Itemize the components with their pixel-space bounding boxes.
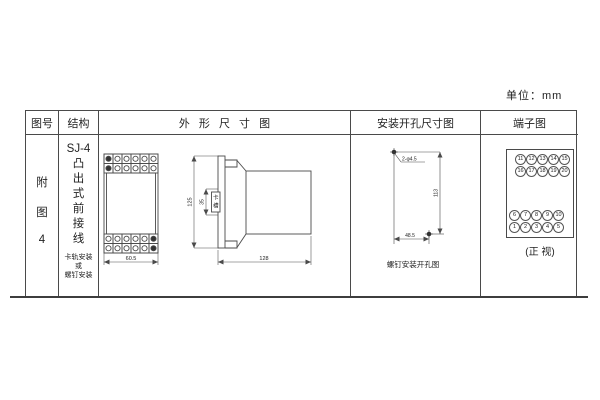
mount-note-line: 螺钉安装 bbox=[65, 271, 93, 280]
structure-char: 凸 bbox=[73, 157, 85, 172]
header-outline: 外 形 尺 寸 图 bbox=[99, 111, 351, 135]
mounting-hole-bottom bbox=[427, 232, 432, 237]
dimension-lines bbox=[104, 156, 311, 265]
relay-front-view bbox=[104, 154, 158, 253]
terminal-18: 18 bbox=[537, 166, 548, 177]
terminal-row: 1617181920 bbox=[515, 166, 570, 177]
terminal-19: 19 bbox=[548, 166, 559, 177]
terminal-13: 13 bbox=[537, 154, 548, 165]
terminal-16: 16 bbox=[515, 166, 526, 177]
terminal-8: 8 bbox=[531, 210, 542, 221]
terminal-1: 1 bbox=[509, 222, 520, 233]
terminal-row: 678910 bbox=[509, 210, 564, 221]
fig-no-char: 图 bbox=[36, 204, 48, 220]
terminal-7: 7 bbox=[520, 210, 531, 221]
horizontal-dim-label: 48.5 bbox=[405, 233, 415, 239]
mounting-hole-drawing: 2-φ4.5 113 48.5 螺钉安装开孔图 bbox=[351, 135, 481, 298]
terminal-4: 4 bbox=[542, 222, 553, 233]
outline-drawing-cell: 60.5 125 35 128 卡槽 bbox=[99, 135, 351, 298]
model-label: SJ-4 bbox=[67, 143, 91, 155]
relay-side-view bbox=[212, 156, 312, 248]
terminal-screw-grid bbox=[104, 154, 158, 253]
terminal-14: 14 bbox=[548, 154, 559, 165]
spec-table: 图号 结构 外 形 尺 寸 图 安装开孔尺寸图 端子图 附 图 4 SJ-4 凸… bbox=[25, 110, 577, 297]
fig-no-char: 附 bbox=[36, 174, 48, 190]
terminal-20: 20 bbox=[559, 166, 570, 177]
terminal-row: 12345 bbox=[509, 222, 564, 233]
side-depth-dim-label: 128 bbox=[259, 256, 268, 262]
slot-label-char: 槽 bbox=[213, 202, 219, 210]
terminal-11: 11 bbox=[515, 154, 526, 165]
fig-no-cell: 附 图 4 bbox=[26, 135, 59, 298]
terminal-15: 15 bbox=[559, 154, 570, 165]
mounting-caption: 螺钉安装开孔图 bbox=[387, 259, 440, 269]
unit-note: 单位：mm bbox=[506, 87, 562, 103]
terminal-10: 10 bbox=[553, 210, 564, 221]
vertical-dim-label: 113 bbox=[434, 189, 440, 197]
terminal-3: 3 bbox=[531, 222, 542, 233]
mount-note-line: 或 bbox=[65, 262, 93, 271]
header-mounting: 安装开孔尺寸图 bbox=[351, 111, 481, 135]
mounting-hole-top bbox=[392, 150, 397, 155]
slot-dim-label: 35 bbox=[200, 199, 206, 205]
mounting-hole-cell: 2-φ4.5 113 48.5 螺钉安装开孔图 bbox=[351, 135, 481, 298]
terminal-group: 67891012345 bbox=[507, 210, 573, 233]
side-height-dim-label: 125 bbox=[188, 197, 194, 206]
terminal-12: 12 bbox=[526, 154, 537, 165]
terminal-row: 1112131415 bbox=[515, 154, 570, 165]
outline-dimension-drawing: 60.5 125 35 128 卡槽 bbox=[99, 135, 351, 298]
structure-cell: SJ-4 凸 出 式 前 接 线 卡轨安装 或 螺钉安装 bbox=[59, 135, 99, 298]
holes-spec-label: 2-φ4.5 bbox=[402, 157, 417, 163]
dimension-labels: 60.5 125 35 128 bbox=[126, 197, 269, 262]
header-fig-no: 图号 bbox=[26, 111, 59, 135]
mounting-method-note: 卡轨安装 或 螺钉安装 bbox=[65, 253, 93, 280]
terminal-diagram-cell: 1112131415161718192067891012345 (正 视) bbox=[481, 135, 578, 298]
header-structure: 结构 bbox=[59, 111, 99, 135]
structure-char: 式 bbox=[73, 187, 85, 202]
terminal-9: 9 bbox=[542, 210, 553, 221]
bottom-rule bbox=[10, 296, 588, 298]
slot-label-char: 卡 bbox=[213, 194, 219, 202]
header-terminal: 端子图 bbox=[481, 111, 578, 135]
front-width-dim-label: 60.5 bbox=[126, 256, 137, 262]
structure-char: 出 bbox=[73, 172, 85, 187]
structure-char: 接 bbox=[73, 217, 85, 232]
terminal-6: 6 bbox=[509, 210, 520, 221]
structure-char: 前 bbox=[73, 202, 85, 217]
terminal-group: 11121314151617181920 bbox=[507, 154, 573, 177]
terminal-5: 5 bbox=[553, 222, 564, 233]
structure-char: 线 bbox=[73, 232, 85, 247]
mount-note-line: 卡轨安装 bbox=[65, 253, 93, 262]
fig-no-char: 4 bbox=[39, 234, 45, 246]
terminal-caption: (正 视) bbox=[501, 243, 579, 258]
terminal-17: 17 bbox=[526, 166, 537, 177]
terminal-box: 1112131415161718192067891012345 bbox=[506, 149, 574, 238]
terminal-2: 2 bbox=[520, 222, 531, 233]
